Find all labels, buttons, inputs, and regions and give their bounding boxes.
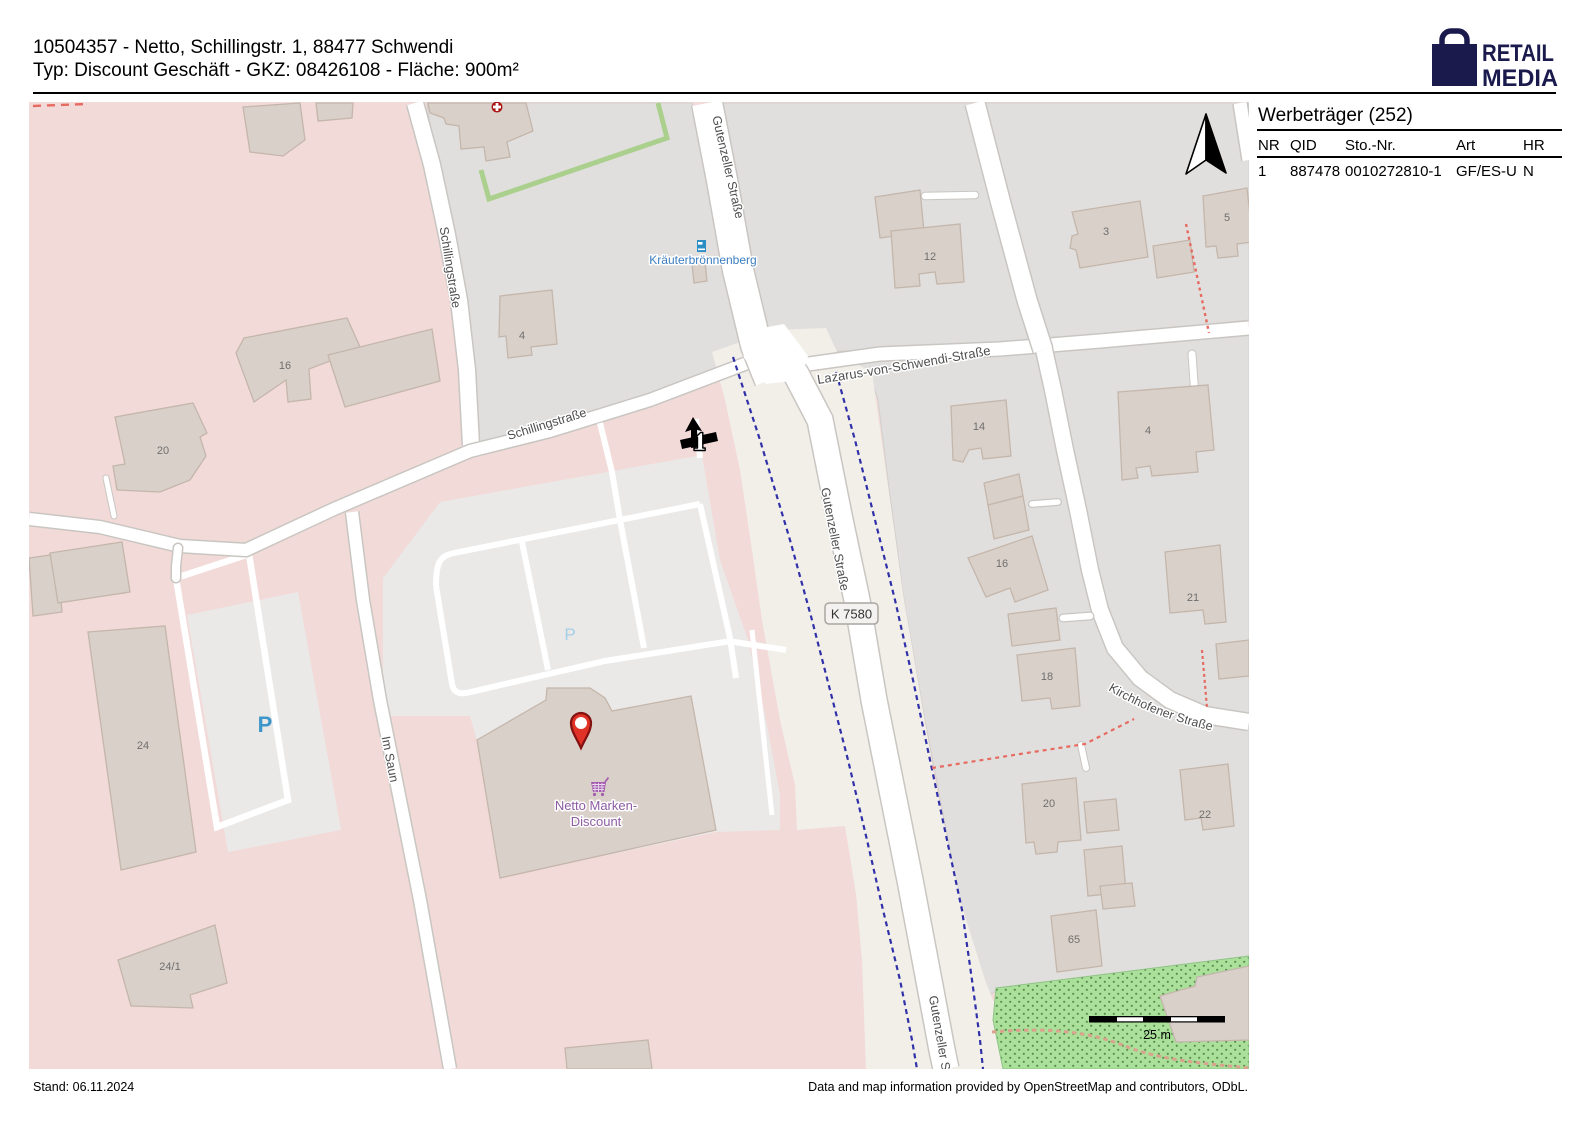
svg-text:Netto Marken-: Netto Marken- bbox=[555, 798, 637, 813]
svg-text:MEDIA: MEDIA bbox=[1482, 65, 1558, 90]
svg-text:16: 16 bbox=[279, 360, 291, 372]
svg-text:4: 4 bbox=[519, 330, 525, 342]
svg-text:12: 12 bbox=[924, 251, 936, 263]
svg-text:3: 3 bbox=[1103, 226, 1109, 238]
svg-text:P: P bbox=[564, 625, 575, 644]
svg-text:18: 18 bbox=[1041, 671, 1053, 683]
svg-text:21: 21 bbox=[1187, 592, 1199, 604]
svg-text:4: 4 bbox=[1145, 425, 1151, 437]
svg-text:20: 20 bbox=[1043, 798, 1055, 810]
svg-text:K 7580: K 7580 bbox=[831, 607, 872, 622]
svg-text:20: 20 bbox=[157, 445, 169, 457]
svg-text:5: 5 bbox=[1224, 212, 1230, 224]
svg-text:25 m: 25 m bbox=[1143, 1028, 1171, 1042]
svg-text:16: 16 bbox=[996, 558, 1008, 570]
svg-text:P: P bbox=[258, 712, 273, 737]
svg-text:22: 22 bbox=[1199, 809, 1211, 821]
svg-text:65: 65 bbox=[1068, 934, 1080, 946]
svg-text:24/1: 24/1 bbox=[159, 961, 180, 973]
svg-text:14: 14 bbox=[973, 421, 985, 433]
svg-text:24: 24 bbox=[137, 740, 149, 752]
svg-text:Discount: Discount bbox=[571, 814, 622, 829]
svg-text:RETAIL: RETAIL bbox=[1482, 40, 1554, 67]
svg-text:Kräuterbrönnenberg: Kräuterbrönnenberg bbox=[649, 253, 756, 267]
